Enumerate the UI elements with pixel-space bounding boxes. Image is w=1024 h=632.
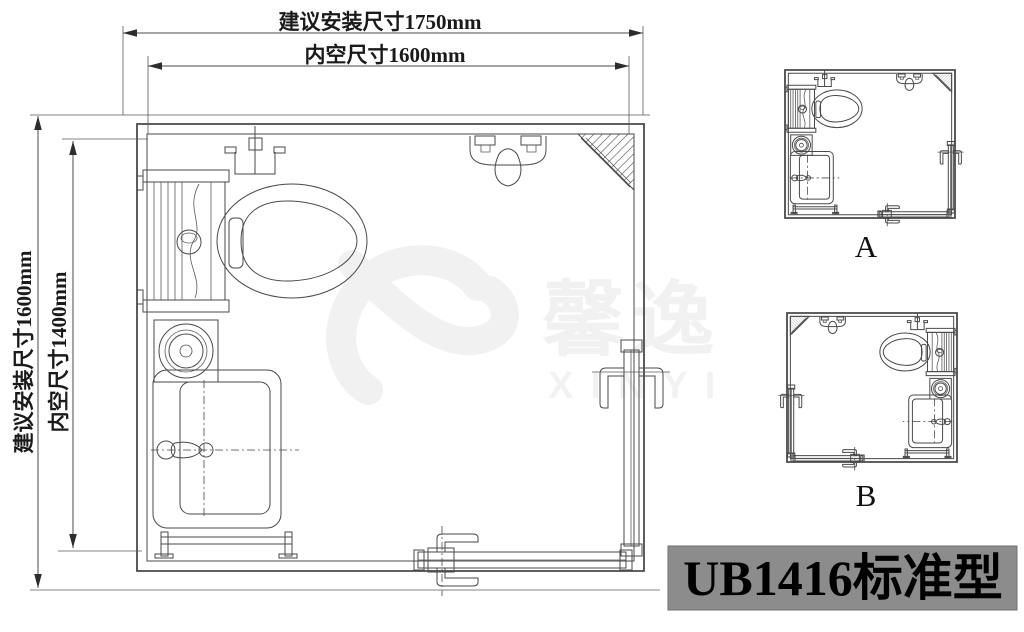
- variant-a-plan: A: [785, 70, 964, 264]
- brand-logo-icon: [341, 260, 505, 390]
- dim-label-top-inner: 内空尺寸1600mm: [305, 43, 466, 67]
- watermark: 馨逸 XINYI: [341, 260, 732, 407]
- dim-label-left-outer: 建议安装尺寸1600mm: [12, 250, 36, 453]
- variant-a-label: A: [855, 229, 878, 264]
- variant-b-label: B: [856, 478, 877, 513]
- dim-left-inner: 内空尺寸1400mm: [47, 141, 77, 548]
- dim-left-outer: 建议安装尺寸1600mm: [12, 116, 42, 588]
- watermark-brand-en: XINYI: [548, 365, 732, 407]
- dim-label-left-inner: 内空尺寸1400mm: [47, 271, 71, 432]
- variant-b-plan: B: [778, 313, 957, 513]
- dim-top-inner: 内空尺寸1600mm: [148, 43, 629, 70]
- dim-top-outer: 建议安装尺寸1750mm: [123, 10, 643, 37]
- dim-label-top-outer: 建议安装尺寸1750mm: [279, 10, 482, 34]
- title-block: UB1416标准型: [668, 546, 1017, 610]
- bathroom-unit-drawing: 馨逸 XINYI 建议安装尺寸1750mm 内空尺寸1600mm: [0, 0, 1024, 632]
- model-title: UB1416标准型: [683, 550, 1002, 606]
- drawing-canvas: 馨逸 XINYI 建议安装尺寸1750mm 内空尺寸1600mm: [0, 0, 1024, 632]
